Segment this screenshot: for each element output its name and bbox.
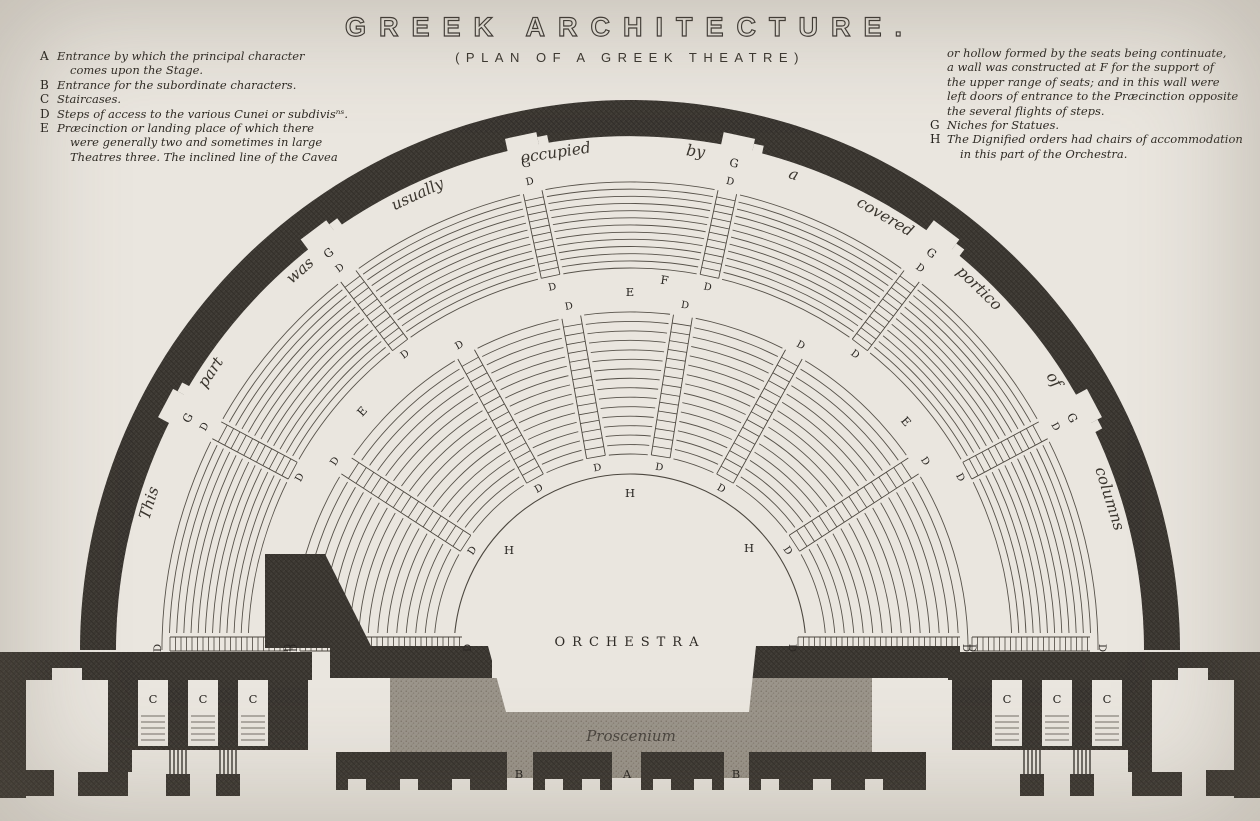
marker-G: G bbox=[728, 155, 740, 171]
marker-D: D bbox=[466, 544, 480, 557]
marker-E: E bbox=[898, 414, 914, 430]
staircase-box bbox=[1092, 680, 1122, 746]
stairway bbox=[785, 453, 923, 555]
marker-G: G bbox=[1064, 410, 1081, 425]
proscenium-label: Proscenium bbox=[585, 727, 676, 745]
marker-D: D bbox=[547, 281, 557, 293]
marker-D: D bbox=[960, 644, 971, 652]
marker-F: F bbox=[660, 273, 670, 288]
seat-row-arc bbox=[406, 426, 855, 650]
marker-D: D bbox=[918, 455, 932, 468]
marker-D: D bbox=[198, 421, 211, 433]
marker-D: D bbox=[725, 176, 735, 188]
stairway bbox=[647, 311, 696, 461]
marker-G: G bbox=[321, 245, 337, 262]
marker-A: A bbox=[622, 767, 632, 781]
masonry-block bbox=[78, 772, 128, 796]
marker-D: D bbox=[794, 339, 806, 353]
marker-D: D bbox=[913, 262, 926, 276]
marker-D: D bbox=[715, 482, 727, 496]
marker-D: D bbox=[564, 301, 574, 313]
orchestra-extension bbox=[488, 646, 756, 712]
marker-C: C bbox=[149, 692, 158, 706]
masonry-block bbox=[1020, 774, 1044, 796]
marker-D: D bbox=[334, 262, 347, 276]
marker-D: D bbox=[593, 462, 603, 474]
marker-C: C bbox=[199, 692, 208, 706]
marker-H: H bbox=[744, 541, 754, 555]
stair-run bbox=[220, 750, 236, 774]
portico-caption-word: by bbox=[685, 141, 706, 161]
seat-row-arc bbox=[434, 454, 826, 650]
wall-crenel-notch bbox=[400, 779, 418, 790]
marker-D: D bbox=[680, 300, 690, 312]
stage-and-wings-masonry bbox=[0, 554, 1260, 798]
staircase-box bbox=[138, 680, 168, 746]
marker-D: D bbox=[1048, 421, 1061, 433]
masonry-block bbox=[1132, 772, 1182, 796]
outer-portico-wall bbox=[80, 100, 1180, 650]
marker-B: B bbox=[515, 767, 523, 781]
wall-crenel-notch bbox=[545, 779, 563, 790]
stairway bbox=[337, 453, 475, 555]
staircase-box bbox=[188, 680, 218, 746]
seat-row-arc bbox=[425, 445, 836, 650]
marker-H: H bbox=[625, 486, 635, 500]
stage-wall-segment bbox=[533, 752, 612, 790]
seat-row-arc bbox=[415, 435, 845, 650]
staircase-box bbox=[238, 680, 268, 746]
masonry-block bbox=[216, 774, 240, 796]
marker-G: G bbox=[179, 410, 196, 425]
staircase-box bbox=[992, 680, 1022, 746]
seat-row-arc bbox=[226, 246, 1033, 650]
masonry-block bbox=[1070, 774, 1094, 796]
marker-D: D bbox=[1096, 644, 1107, 652]
marker-D: D bbox=[703, 281, 713, 293]
marker-D: D bbox=[953, 471, 966, 483]
marker-D: D bbox=[293, 471, 306, 483]
marker-G: G bbox=[924, 245, 940, 262]
marker-D: D bbox=[283, 644, 294, 652]
marker-E: E bbox=[354, 404, 370, 420]
marker-D: D bbox=[780, 544, 794, 557]
marker-D: D bbox=[786, 644, 797, 652]
wall-crenel-notch bbox=[452, 779, 470, 790]
marker-D: D bbox=[848, 348, 861, 362]
marker-D: D bbox=[399, 348, 412, 362]
masonry-block bbox=[0, 770, 54, 796]
engraving-plate: GREEK ARCHITECTURE. (PLAN OF A GREEK THE… bbox=[0, 0, 1260, 821]
marker-D: D bbox=[153, 644, 164, 652]
marker-C: C bbox=[1053, 692, 1062, 706]
wall-crenel-notch bbox=[694, 779, 712, 790]
analemma-wall bbox=[265, 554, 372, 648]
portico-caption-word: a bbox=[786, 164, 801, 184]
marker-C: C bbox=[1103, 692, 1112, 706]
wall-crenel-notch bbox=[582, 779, 600, 790]
marker-D: D bbox=[533, 482, 545, 496]
masonry-block bbox=[1206, 770, 1260, 796]
stair-run bbox=[1024, 750, 1040, 774]
outer-ring-wall bbox=[80, 100, 1180, 650]
masonry-block bbox=[108, 652, 132, 772]
orchestra-label: ORCHESTRA bbox=[555, 635, 706, 650]
wall-crenel-notch bbox=[761, 779, 779, 790]
staircase-box bbox=[1042, 680, 1072, 746]
stair-run bbox=[1074, 750, 1090, 774]
wall-crenel-notch bbox=[865, 779, 883, 790]
marker-D: D bbox=[525, 176, 535, 188]
wall-crenel-notch bbox=[348, 779, 366, 790]
wall-notch bbox=[1178, 668, 1208, 680]
marker-E: E bbox=[626, 285, 634, 299]
wall-notch bbox=[52, 668, 82, 680]
stairway bbox=[558, 312, 609, 462]
theatre-plan-drawing: ORCHESTRA Proscenium DDDDDDDDDDDDDDDDDDD… bbox=[0, 0, 1260, 821]
seat-row-arc bbox=[241, 261, 1019, 650]
marker-D: D bbox=[453, 339, 465, 353]
wall-crenel-notch bbox=[653, 779, 671, 790]
marker-B: B bbox=[732, 767, 740, 781]
marker-D: D bbox=[328, 455, 342, 468]
marker-D: D bbox=[463, 644, 474, 652]
marker-H: H bbox=[504, 543, 514, 557]
seat-row-arc bbox=[234, 254, 1027, 650]
marker-C: C bbox=[1003, 692, 1012, 706]
masonry-block bbox=[166, 774, 190, 796]
orchestra-circle bbox=[454, 474, 806, 650]
masonry-block bbox=[752, 646, 960, 678]
masonry-block bbox=[1128, 652, 1152, 772]
wall-crenel-notch bbox=[813, 779, 831, 790]
marker-D: D bbox=[654, 462, 664, 474]
marker-C: C bbox=[249, 692, 258, 706]
stair-run bbox=[170, 750, 186, 774]
